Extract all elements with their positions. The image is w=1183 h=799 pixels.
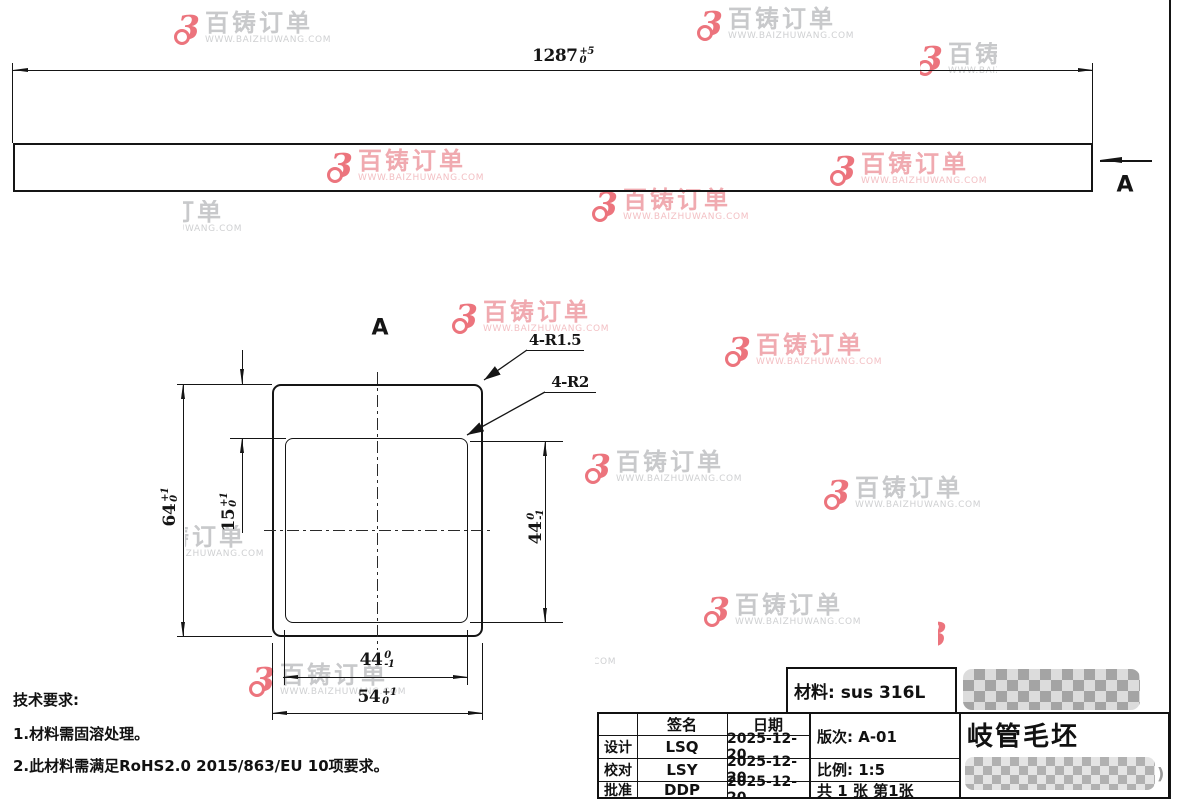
dimension-arrow: [272, 711, 287, 715]
extension-line: [230, 438, 286, 439]
watermark: 3 百铸订单WWW.BAIZHUWANG.COM: [177, 11, 331, 46]
table-divider: [959, 714, 961, 797]
callout-inner-radius: 4-R2: [544, 373, 596, 393]
baizhu-logo-icon: 3: [177, 11, 200, 44]
baizhu-logo-icon: 3: [938, 618, 947, 651]
section-cut-arrow: [1100, 157, 1122, 163]
scale-cell: 比例: 1:5: [817, 758, 957, 781]
baizhu-logo-icon: 3: [455, 300, 478, 333]
watermark: 3 百铸订单WWW.BAIZHUWANG.COM: [707, 593, 861, 628]
row-sign: DDP: [637, 781, 727, 799]
redacted-block: [963, 669, 1140, 710]
extension-line: [177, 384, 272, 385]
dimension-arrow: [468, 711, 483, 715]
extension-line: [470, 622, 563, 623]
part-name: 岐管毛坯: [967, 716, 1167, 752]
redacted-block: [965, 757, 1155, 790]
tech-requirement-item: 1.材料需固溶处理。: [13, 723, 149, 744]
baizhu-logo-icon: 3: [707, 593, 730, 626]
dimension-arrow: [1078, 68, 1093, 72]
sign-header: 签名: [637, 714, 727, 735]
dimension-arrow: [453, 675, 468, 679]
watermark-clipped: 3 百铸订单WWW.BAIZHUWANG.COM: [595, 633, 615, 673]
dimension-arrow: [240, 369, 244, 384]
baizhu-logo-icon: 3: [700, 7, 723, 40]
baizhu-logo-icon: 3: [827, 476, 850, 509]
dimension-arrow: [13, 68, 28, 72]
watermark: 3 百铸订单WWW.BAIZHUWANG.COM: [827, 476, 981, 511]
row-date: 2025-12-20: [727, 781, 809, 799]
extension-line: [272, 643, 273, 720]
row-role: 批准: [599, 781, 637, 799]
dim-label-length: 1287 +50: [532, 46, 594, 66]
dim-label-outer-width: 54 +10: [357, 687, 396, 707]
tech-requirement-item: 2.此材料需满足RoHS2.0 2015/863/EU 10项要求。: [13, 755, 389, 776]
watermark: 3 百铸订单WWW.BAIZHUWANG.COM: [455, 300, 609, 335]
material-label: 材料: sus 316L: [794, 667, 925, 714]
vertical-centerline: [377, 372, 378, 650]
dim-label-top-wall: 15 +10: [219, 492, 239, 531]
dimension-arrow: [283, 675, 298, 679]
dim-label-inner-height: 44 0-1: [526, 510, 546, 545]
dimension-line-44h: [283, 677, 468, 678]
extension-line: [177, 636, 272, 637]
baizhu-logo-icon: 3: [588, 450, 611, 483]
dimension-arrow: [181, 384, 185, 399]
watermark: 3 百铸订单WWW.BAIZHUWANG.COM: [588, 450, 742, 485]
dim-label-outer-height: 64 +10: [160, 487, 180, 526]
extension-line: [470, 441, 563, 442]
drawing-frame-right-border: [1169, 0, 1171, 799]
dim-label-inner-width: 44 0-1: [360, 650, 395, 670]
row-role: 校对: [599, 758, 637, 781]
watermark: 3 百铸订单WWW.BAIZHUWANG.COM: [700, 7, 854, 42]
dimension-line-54: [272, 713, 483, 714]
watermark: 3 百铸订单WWW.BAIZHUWANG.COM: [595, 188, 749, 223]
revision-cell: 版次: A-01: [817, 714, 957, 758]
baizhu-logo-icon: 3: [595, 188, 618, 221]
tech-requirements-title: 技术要求:: [13, 689, 79, 710]
watermark-clipped: 3 百铸订单WWW.BAIZHUWANG.COM: [183, 200, 251, 240]
callout-outer-radius: 4-R1.5: [526, 331, 584, 351]
row-role: 设计: [599, 735, 637, 758]
dimension-arrow: [181, 622, 185, 637]
extension-line: [12, 63, 13, 143]
sheet-cell: 共 1 张 第1张: [817, 781, 957, 799]
dimension-arrow: [240, 438, 244, 453]
view-label-a: A: [371, 316, 388, 341]
extension-line: [482, 643, 483, 720]
redacted-suffix: ): [1157, 760, 1164, 786]
dimension-arrow: [543, 608, 547, 623]
section-label-a: A: [1116, 173, 1133, 198]
watermark-clipped: 3: [938, 618, 955, 655]
engineering-drawing-canvas: 3 百铸订单WWW.BAIZHUWANG.COM 3 百铸订单WWW.BAIZH…: [0, 0, 1183, 799]
extension-line: [1092, 63, 1093, 143]
baizhu-logo-icon: 3: [728, 333, 751, 366]
watermark-clipped: 3 百铸订单WWW.BAIZHUWANG.COM: [920, 42, 997, 82]
row-sign: LSQ: [637, 735, 727, 758]
row-sign: LSY: [637, 758, 727, 781]
table-divider: [809, 714, 811, 797]
horizontal-centerline: [264, 530, 493, 531]
dimension-line-1287: [13, 70, 1093, 71]
top-view-bar-outline: [13, 143, 1093, 192]
watermark: 3 百铸订单WWW.BAIZHUWANG.COM: [728, 333, 882, 368]
dimension-arrow: [543, 441, 547, 456]
dimension-line-64: [183, 384, 184, 637]
